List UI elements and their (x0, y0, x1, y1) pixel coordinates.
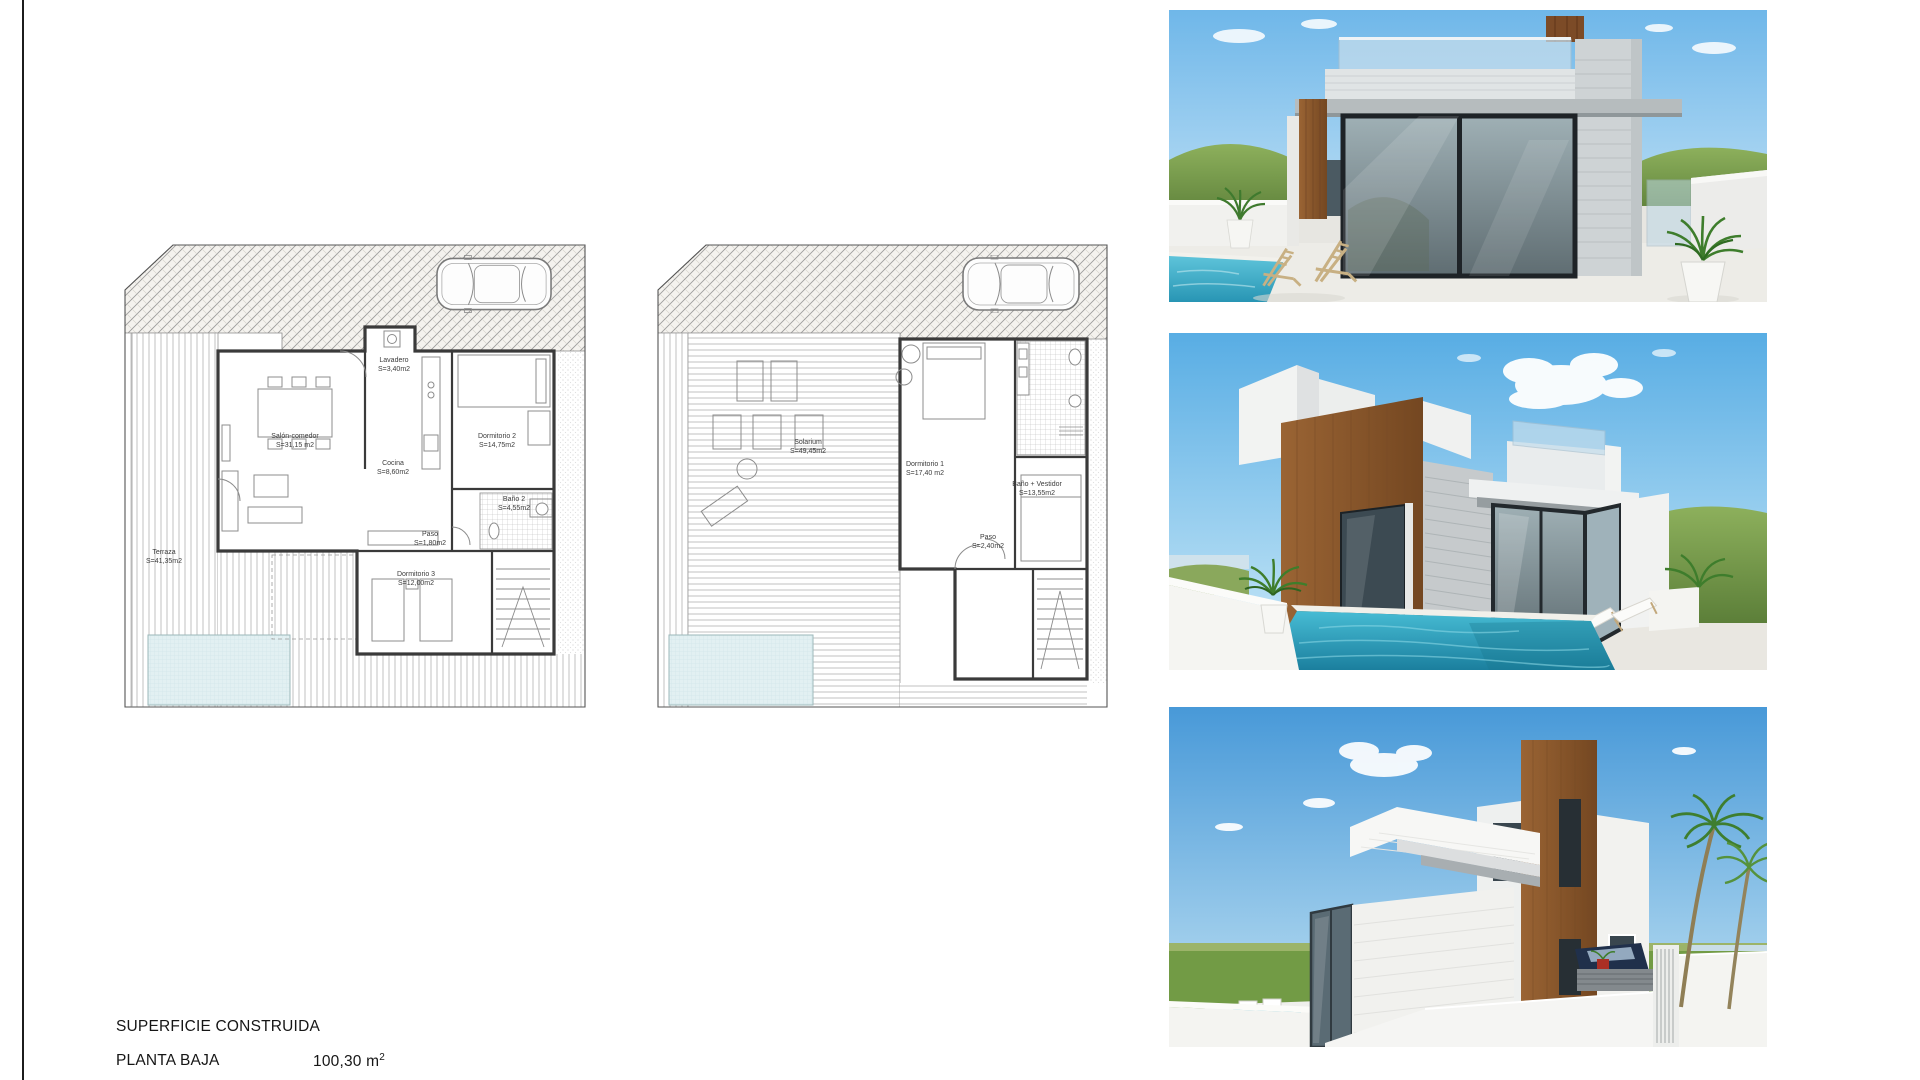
render-photo-side-pool (1169, 333, 1767, 670)
glass-balustrade (1339, 39, 1571, 71)
room-label-lavadero: Lavadero (379, 357, 408, 364)
room-label-dormitorio-2: Dormitorio 2 (478, 433, 516, 440)
bathroom-vestidor (1017, 341, 1085, 455)
planter-pot (1227, 220, 1253, 248)
room-label-bano-vestidor: Baño + Vestidor (1012, 481, 1062, 488)
car-top-view-icon (963, 255, 1079, 313)
floor-plan-planta-baja: Salón-comedor S=31,15 m2 Cocina S=8,60m2… (122, 239, 600, 722)
summary-row-label: PLANTA BAJA (116, 1052, 313, 1072)
planter-pot (1681, 262, 1725, 302)
house (1287, 16, 1682, 276)
planter-box (1649, 587, 1699, 631)
floor-plan-planta-primera: Solarium S=49,45m2 Dormitorio 1 S=17,40 … (655, 239, 1115, 722)
render-photo-street-view (1169, 707, 1767, 1047)
summary-row-planta-baja: PLANTA BAJA 100,30 m2 (116, 1052, 385, 1072)
surface-summary: SUPERFICIE CONSTRUIDA PLANTA BAJA 100,30… (116, 1018, 385, 1080)
room-label-dormitorio-3: Dormitorio 3 (397, 571, 435, 578)
summary-title: SUPERFICIE CONSTRUIDA (116, 1018, 385, 1036)
room-label-dormitorio-1: Dormitorio 1 (906, 461, 944, 468)
wall-right (1679, 952, 1767, 1047)
room-label-terraza: Terraza (152, 549, 175, 556)
recessed-window (1559, 799, 1581, 887)
sheet-border-line (22, 0, 24, 1080)
wall-left (1169, 1007, 1319, 1047)
wall-left-cap (1169, 200, 1295, 205)
glass-fence-right (1647, 180, 1691, 246)
room-label-paso: Paso (422, 531, 438, 538)
room-area-cocina: S=8,60m2 (377, 469, 409, 476)
room-area-dormitorio-2: S=14,75m2 (479, 442, 515, 449)
room-area-lavadero: S=3,40m2 (378, 366, 410, 373)
summary-row-value: 100,30 m2 (313, 1052, 385, 1072)
side-strip (1089, 339, 1107, 683)
room-area-paso: S=1,80m2 (414, 540, 446, 547)
room-label-bano-2: Baño 2 (503, 496, 525, 503)
terrace-deck (357, 654, 585, 707)
pool (148, 635, 290, 705)
plan-sheet: Salón-comedor S=31,15 m2 Cocina S=8,60m2… (0, 0, 1920, 1080)
render-photo-rear-terrace (1169, 10, 1767, 302)
planter-pot (1261, 605, 1287, 633)
driveway-items (1575, 943, 1653, 991)
car-top-view-icon (437, 255, 551, 312)
room-label-solarium: Solarium (794, 439, 822, 446)
room-area-bano-vestidor: S=13,55m2 (1019, 490, 1055, 497)
room-area-terraza: S=41,35m2 (146, 558, 182, 565)
pool-yard-left (1169, 999, 1319, 1047)
lower-deck (900, 683, 1087, 707)
room-area-solarium: S=49,45m2 (790, 448, 826, 455)
pool (669, 635, 813, 705)
room-label-salon: Salón-comedor (271, 433, 319, 440)
room-area-salon: S=31,15 m2 (276, 442, 314, 449)
room-area-dormitorio-1: S=17,40 m2 (906, 470, 944, 477)
louver-fence (1577, 969, 1653, 991)
room-area-bano-2: S=4,55m2 (498, 505, 530, 512)
room-area-dormitorio-3: S=12,00m2 (398, 580, 434, 587)
room-area-paso: S=2,40m2 (972, 543, 1004, 550)
room-label-cocina: Cocina (382, 460, 404, 467)
side-strip (558, 351, 585, 654)
room-label-paso: Paso (980, 534, 996, 541)
side-wall (1287, 116, 1299, 246)
